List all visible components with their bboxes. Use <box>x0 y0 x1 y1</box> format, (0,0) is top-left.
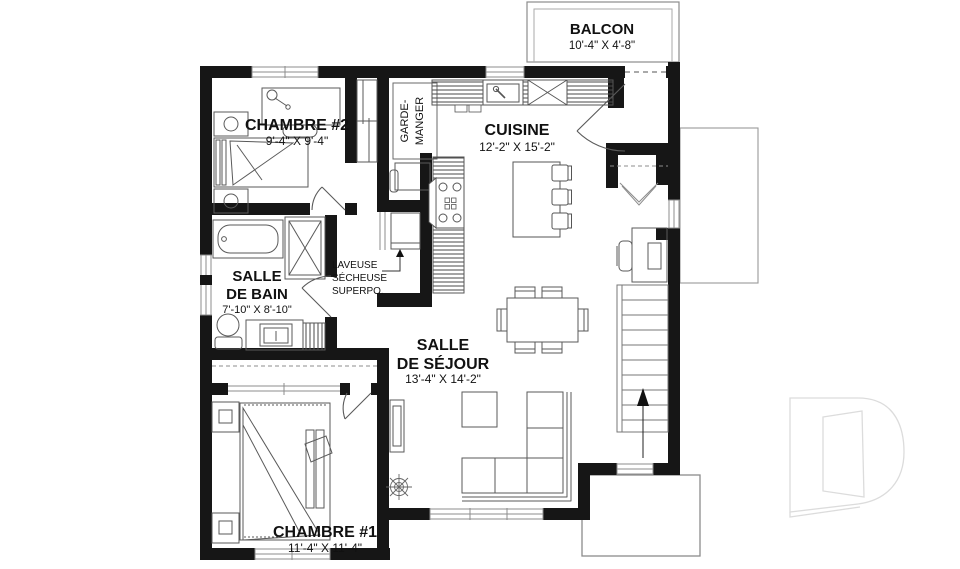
shower <box>285 217 325 279</box>
bedroom1-label: CHAMBRE #1 <box>273 524 377 541</box>
bathtub <box>213 220 283 258</box>
bed <box>240 403 332 540</box>
coffee-table <box>462 392 497 427</box>
lamp-icon <box>224 117 238 131</box>
laundry: LAVEUSE SÉCHEUSE SUPERPO. <box>332 212 420 297</box>
nightstand <box>214 112 248 136</box>
kitchen-dims: 12'-2" X 15'-2" <box>479 140 555 154</box>
balcony: BALCON 10'-4" X 4'-8" <box>527 2 679 72</box>
nightstand <box>212 513 239 543</box>
vanity-sink <box>246 320 303 350</box>
stair-up-arrow-icon <box>637 388 649 458</box>
floor-plan-page: BALCON 10'-4" X 4'-8" <box>0 0 960 569</box>
sink <box>483 80 523 105</box>
bedroom2-window <box>252 66 318 78</box>
bedroom2-dims: 9'-4" X 9'-4" <box>266 134 328 148</box>
plant-icon <box>386 474 412 500</box>
bedroom1-dims: 11'-4" X 11'-4" <box>288 541 362 555</box>
bedroom1-door <box>343 393 371 419</box>
living-label-1: SALLE <box>417 337 470 354</box>
floor-vent <box>303 323 325 350</box>
stove <box>429 178 464 228</box>
bathroom: SALLE DE BAIN 7'-10" X 8'-10" <box>213 217 325 350</box>
east-window <box>668 200 680 228</box>
refrigerator <box>528 80 567 105</box>
roof-outline <box>680 128 758 283</box>
bathroom-dims: 7'-10" X 8'-10" <box>222 304 292 316</box>
desk-lamp-icon <box>267 90 290 109</box>
pantry-label-1: GARDE- <box>399 99 411 142</box>
closet <box>357 80 377 162</box>
pantry-label-2: MANGER <box>414 97 426 145</box>
kitchen-window <box>486 66 524 78</box>
toilet <box>215 314 242 349</box>
stair-window <box>617 463 653 475</box>
bathroom-label-2: DE BAIN <box>226 286 288 303</box>
balcony-dims: 10'-4" X 4'-8" <box>569 40 635 52</box>
laundry-label-3: SUPERPO. <box>332 286 384 297</box>
floor-plan: BALCON 10'-4" X 4'-8" <box>0 0 960 569</box>
kitchen: CUISINE 12'-2" X 15'-2" <box>429 80 613 293</box>
chair <box>619 241 632 271</box>
washer-dryer <box>391 213 420 249</box>
living-dims: 13'-4" X 14'-2" <box>405 372 481 386</box>
dining-table <box>497 287 588 353</box>
bedroom2-door <box>312 187 345 210</box>
letter-d-watermark-icon <box>790 398 904 517</box>
laundry-leader-arrow <box>382 249 404 271</box>
bedroom2-label: CHAMBRE #2 <box>245 117 349 134</box>
sectional-sofa <box>462 392 571 501</box>
living-window <box>430 508 543 520</box>
balcony-label: BALCON <box>570 21 634 38</box>
entry-area <box>610 166 668 458</box>
bathroom-label-1: SALLE <box>232 268 281 285</box>
laundry-label-2: SÉCHEUSE <box>332 271 387 284</box>
bathroom-door <box>302 276 331 317</box>
living-room: SALLE DE SÉJOUR 13'-4" X 14'-2" <box>386 287 588 501</box>
island-stools <box>552 165 572 229</box>
bedroom1: CHAMBRE #1 11'-4" X 11'-4" <box>212 366 377 555</box>
tv-stand <box>390 400 404 452</box>
kitchen-label: CUISINE <box>485 122 550 139</box>
closet-sliding-door <box>212 366 377 395</box>
laundry-label-1: LAVEUSE <box>332 260 378 271</box>
living-label-2: DE SÉJOUR <box>397 354 490 373</box>
pantry: GARDE- MANGER <box>390 83 437 192</box>
porch-outline <box>582 475 700 556</box>
nightstand <box>212 402 239 432</box>
pillow <box>305 436 332 462</box>
chair <box>390 170 398 192</box>
